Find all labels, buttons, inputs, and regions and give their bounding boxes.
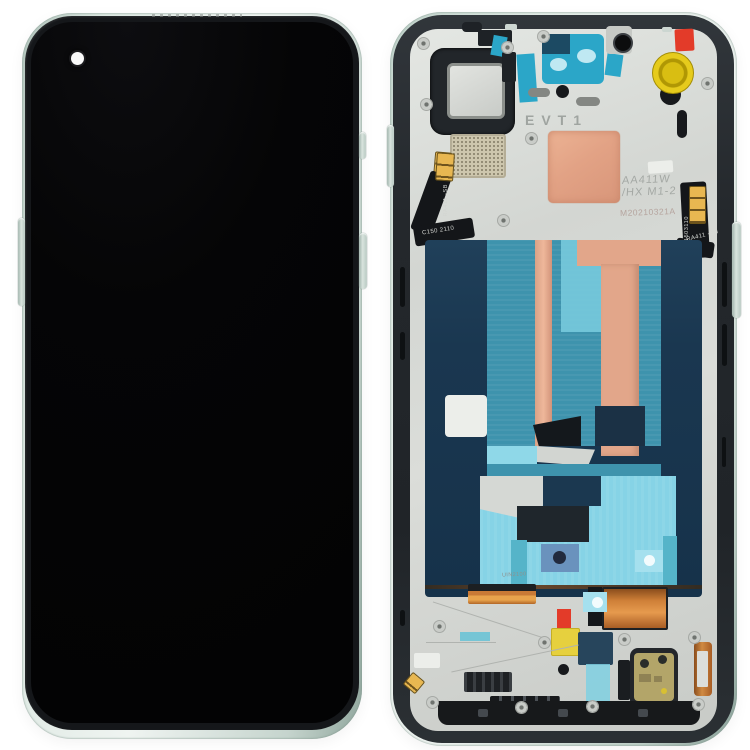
top-antenna-dots bbox=[152, 14, 242, 17]
screw bbox=[587, 701, 598, 712]
alert-slider-button bbox=[359, 132, 366, 159]
etched-model-line2: /HX M1-2 bbox=[621, 185, 676, 199]
copper-strip-vertical bbox=[535, 240, 552, 446]
screw bbox=[538, 31, 549, 42]
teal-strip-vertical-2 bbox=[663, 536, 677, 585]
screw bbox=[418, 38, 429, 49]
left-flex-vertical-label: RA411 -SB bbox=[443, 184, 449, 217]
screw bbox=[539, 637, 550, 648]
screw bbox=[689, 632, 700, 643]
gold-contact-pads-flex-left bbox=[435, 152, 455, 181]
adhesive-chip-2 bbox=[605, 53, 624, 77]
ribbed-black-bracket bbox=[464, 672, 512, 692]
screw bbox=[619, 634, 630, 645]
display-back-panel bbox=[425, 240, 702, 597]
vibration-motor-yellow bbox=[652, 52, 694, 94]
kapton-tape-square bbox=[551, 628, 580, 656]
bracket-l-shape bbox=[502, 52, 516, 82]
screen-glass bbox=[31, 22, 353, 723]
charging-coil-copper-block bbox=[602, 587, 668, 630]
adhesive-strip-bottom-2 bbox=[460, 632, 490, 641]
side-slot-left-1 bbox=[400, 267, 405, 307]
white-square-cutout bbox=[445, 395, 487, 437]
dark-post bbox=[618, 660, 630, 700]
strip-notch bbox=[478, 709, 488, 717]
etched-date-code: M20210321A bbox=[620, 206, 676, 218]
strip-notch bbox=[558, 709, 568, 717]
antenna-break-top-right bbox=[662, 27, 672, 32]
loudspeaker-module bbox=[630, 648, 678, 708]
etched-frame-code: UIN2100 bbox=[502, 571, 527, 578]
frame-cutout-oval-1 bbox=[528, 88, 550, 97]
sensor-lens bbox=[613, 33, 633, 53]
speaker-screw-hole bbox=[640, 659, 649, 668]
cyan-strip bbox=[487, 446, 537, 464]
front-camera-punch-hole bbox=[71, 52, 84, 65]
camera-window bbox=[447, 63, 505, 119]
product-photo: EVT1 AA411W /HX M1-2 M20210321A RA411 -S… bbox=[0, 0, 750, 750]
side-slot-right-1 bbox=[722, 262, 727, 307]
teal-strip bbox=[487, 464, 661, 476]
screw bbox=[434, 621, 445, 632]
vibrator-label bbox=[697, 651, 708, 687]
frame-hole-1 bbox=[556, 85, 569, 98]
speaker-yellow-dot bbox=[661, 688, 667, 694]
frame-cutout-oval-2 bbox=[576, 97, 600, 106]
white-label bbox=[648, 160, 674, 174]
lcd-assembly-back: EVT1 AA411W /HX M1-2 M20210321A RA411 -S… bbox=[390, 12, 737, 746]
copper-film-top-band bbox=[577, 240, 661, 266]
navy-notch bbox=[543, 476, 601, 506]
speaker-marking bbox=[654, 676, 662, 682]
screw bbox=[526, 133, 537, 144]
white-bracket bbox=[414, 653, 440, 668]
frame-slot-pill bbox=[677, 110, 687, 138]
frame-hole-bottom bbox=[558, 664, 569, 675]
screw bbox=[693, 699, 704, 710]
main-flex-copper-bar bbox=[468, 584, 536, 604]
etch-line bbox=[426, 642, 496, 643]
volume-button bbox=[18, 218, 25, 306]
teal-strip-vertical-1 bbox=[511, 540, 527, 585]
vibration-motor-copper bbox=[694, 642, 712, 696]
strip-notch bbox=[638, 709, 648, 717]
adhesive-blob bbox=[550, 58, 567, 71]
screw bbox=[498, 215, 509, 226]
cyan-pad-with-hole bbox=[635, 550, 663, 572]
side-slot-left-3 bbox=[400, 610, 405, 626]
adhesive-blob bbox=[577, 49, 596, 63]
bottom-black-strip bbox=[438, 701, 700, 725]
lcd-assembly-front bbox=[22, 13, 362, 739]
red-pull-tape-top bbox=[674, 29, 694, 52]
screw bbox=[502, 42, 513, 53]
earpiece-adhesive-patch bbox=[542, 34, 604, 84]
speaker-screw-hole bbox=[658, 655, 667, 664]
etched-build-stage: EVT1 bbox=[525, 112, 588, 128]
back-side-button-left bbox=[387, 125, 394, 187]
blue-pad-with-hole bbox=[541, 544, 579, 572]
side-slot-right-2 bbox=[722, 324, 727, 366]
navy-block bbox=[595, 406, 645, 446]
screw bbox=[516, 702, 527, 713]
black-block bbox=[517, 506, 589, 542]
copper-heat-spreader bbox=[548, 131, 620, 203]
side-slot-left-2 bbox=[400, 332, 405, 360]
navy-foam-patch bbox=[578, 632, 613, 665]
screw bbox=[427, 697, 438, 708]
silver-cutout bbox=[537, 446, 595, 466]
screw bbox=[702, 78, 713, 89]
power-button bbox=[359, 233, 367, 289]
gold-contact-pads-flex-right bbox=[689, 186, 706, 224]
speaker-marking bbox=[639, 674, 651, 682]
back-volume-button-right bbox=[732, 222, 741, 318]
screw bbox=[421, 99, 432, 110]
side-slot-right-3 bbox=[722, 437, 726, 467]
mic-bracket bbox=[462, 22, 482, 32]
cyan-pad-tab bbox=[583, 592, 607, 612]
mesh-grille bbox=[450, 134, 506, 178]
